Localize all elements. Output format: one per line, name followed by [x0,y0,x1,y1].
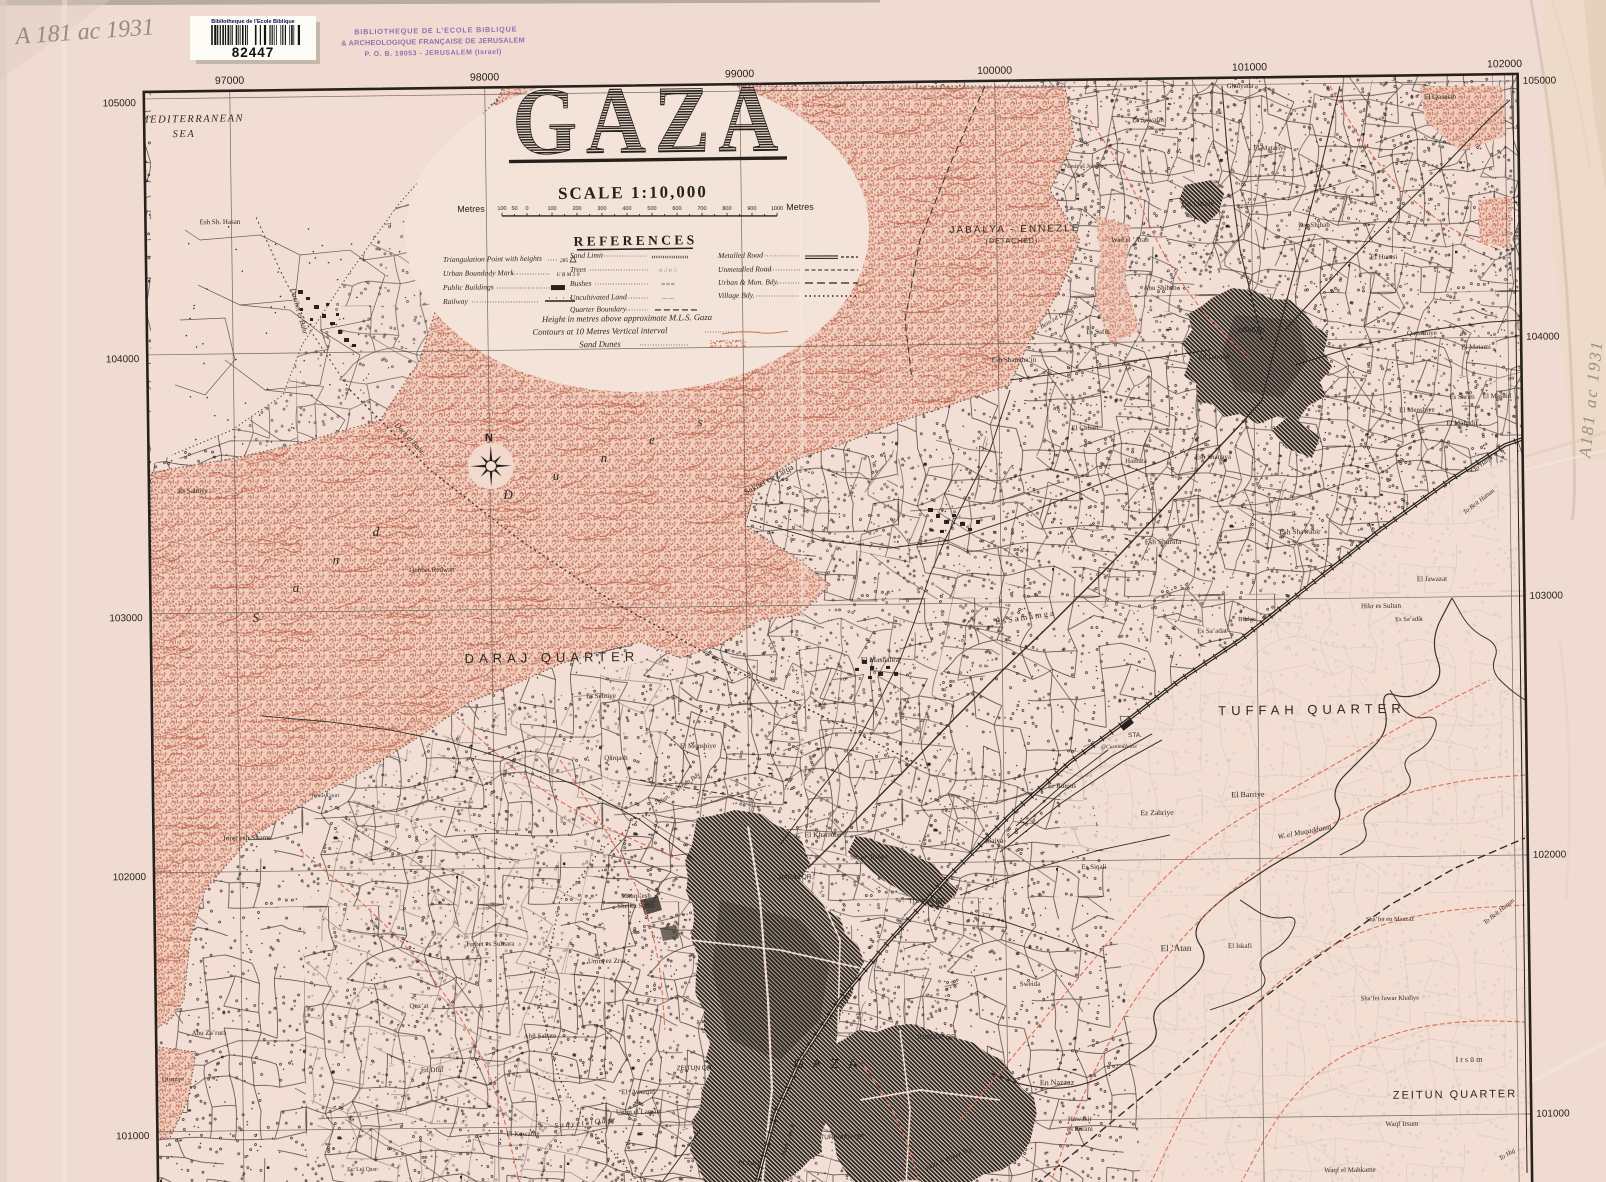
svg-text:Metres: Metres [786,202,814,212]
svg-text:A: A [813,1056,824,1071]
svg-text:Urban Boundady Mark: Urban Boundady Mark [443,268,515,278]
svg-text:El ’Atan: El ’Atan [1161,943,1192,953]
svg-text:Public Buildings: Public Buildings [442,282,494,292]
svg-text:@CustomHouse: @CustomHouse [1101,744,1138,750]
svg-text:Umm el Laman: Umm el Laman [616,1108,661,1117]
svg-text:Quz’at: Quz’at [409,1002,428,1010]
svg-text:Esh Shurafa: Esh Shurafa [1145,537,1182,546]
svg-text:Sha’fet Juwar Khafiye: Sha’fet Juwar Khafiye [1361,995,1420,1003]
svg-text:Bushes: Bushes [570,279,592,288]
svg-text:El Jawli: El Jawli [739,1159,762,1167]
svg-text:200: 200 [572,206,581,212]
svg-text:800: 800 [722,206,731,212]
svg-text:Urban & Mun. Bdy.: Urban & Mun. Bdy. [718,277,779,287]
svg-text:Unmetalled Road: Unmetalled Road [718,264,772,274]
svg-text:En Nazzaz: En Nazzaz [1040,1078,1075,1087]
svg-text:Triangulation Point with heigh: Triangulation Point with heights [443,254,542,264]
svg-text:A: A [849,1056,860,1071]
svg-text:Bibliotheque de l'Ecole Bibliq: Bibliotheque de l'Ecole Biblique [211,19,295,25]
svg-text:Ez Zahriye: Ez Zahriye [1140,808,1174,817]
svg-text:Wad el ’Arab: Wad el ’Arab [1111,236,1149,244]
svg-text:101000: 101000 [1232,61,1267,73]
svg-text:Waqf el Mahkame: Waqf el Mahkame [1324,1166,1376,1175]
svg-text:Dar Shihab: Dar Shihab [1298,221,1330,229]
svg-text:Es Sarim: Es Sarim [1449,393,1475,401]
svg-text:El Mashahra: El Mashahra [861,655,900,665]
svg-text:es Surani: es Surani [1067,1125,1093,1133]
svg-text:ZEITUN QUARTER: ZEITUN QUARTER [1393,1088,1518,1102]
svg-text:1000: 1000 [771,206,783,212]
svg-text:Sha’fet en Mazzaz: Sha’fet en Mazzaz [1366,916,1415,924]
svg-text:Nasir el Jeish: Nasir el Jeish [1064,163,1100,170]
svg-text:Sheikh Salim: Sheikh Salim [617,902,655,910]
svg-text:SEA: SEA [173,129,196,140]
svg-text:Ed Dful: Ed Dful [421,1066,444,1074]
svg-text:Turbet es Sumara: Turbet es Sumara [465,940,515,949]
svg-text:102000: 102000 [1533,849,1567,860]
svg-text:El Chbari: El Chbari [1071,424,1098,432]
svg-text:Trees: Trees [570,265,586,274]
svg-text:Abu Sabate: Abu Sabate [524,1032,557,1040]
svg-text:Qarqash: Qarqash [604,754,628,762]
svg-text:El Monshiye: El Monshiye [680,742,716,750]
svg-text:JUDEIDE QR.: JUDEIDE QR. [916,1034,957,1042]
svg-text:Umm ez Zrur: Umm ez Zrur [588,957,627,966]
svg-text:Sand Limit: Sand Limit [570,251,604,260]
svg-text:≈ ≈ ≈: ≈ ≈ ≈ [661,282,675,288]
svg-text:Bridge: Bridge [1238,616,1256,623]
svg-text:&: & [635,1098,641,1106]
svg-text:Hikr es Sultan: Hikr es Sultan [1361,602,1402,611]
svg-text:TURKMAN QR.: TURKMAN QR. [820,1134,866,1142]
svg-text:50: 50 [511,206,517,212]
svg-text:Es Safih: Es Safih [1086,328,1110,336]
svg-text:Qubbet Redwan: Qubbet Redwan [409,566,455,575]
svg-text:S: S [253,610,260,625]
svg-text:’Ibaiya: ’Ibaiya [982,836,1004,845]
svg-text:u: u [553,468,560,483]
svg-text:Qismiye: Qismiye [162,1076,184,1083]
svg-text:99000: 99000 [725,68,755,80]
svg-text:Mauqi’esh: Mauqi’esh [621,892,652,900]
svg-text:Village Bdy.: Village Bdy. [718,291,755,300]
svg-text:500: 500 [647,206,656,212]
svg-text:Es Sa’adat: Es Sa’adat [1197,627,1227,635]
svg-text:El Matariye: El Matariye [1253,144,1286,152]
svg-text:I r s ū m: I r s ū m [1456,1055,1484,1064]
svg-text:El Barriye: El Barriye [1231,790,1265,799]
svg-text:En Nezle: En Nezle [1181,198,1214,208]
svg-text:Waqf Irsum: Waqf Irsum [1385,1120,1419,1128]
svg-text:101000: 101000 [116,1131,150,1142]
svg-text:101000: 101000 [1536,1108,1570,1119]
svg-text:Abu Shihab: Abu Shihab [1143,284,1177,292]
svg-text:El Humsi: El Humsi [1371,253,1398,261]
svg-text:82447: 82447 [232,45,275,60]
svg-text:El ’Awamid: El ’Awamid [621,1088,655,1096]
svg-text:Contours at 10 Metres Vertical: Contours at 10 Metres Vertical interval [532,325,668,337]
svg-text:100: 100 [547,206,556,212]
svg-text:Tennis Court: Tennis Court [311,793,340,799]
svg-text:103000: 103000 [1529,590,1563,601]
svg-text:103000: 103000 [109,613,143,624]
svg-text:Esh Shamma’in: Esh Shamma’in [992,356,1037,365]
svg-text:n: n [601,450,608,465]
svg-text:Es Sa’adât: Es Sa’adât [1395,616,1423,623]
svg-text:El Qasasib: El Qasasib [1424,92,1457,101]
svg-text:El Kawafne: El Kawafne [506,1130,539,1138]
svg-text:N: N [485,432,493,444]
svg-text:R E F E R E N C E S: R E F E R E N C E S [574,232,695,249]
svg-text:Sweida: Sweida [1020,980,1042,988]
svg-text:Esh Sh. Hasan: Esh Sh. Hasan [200,218,241,227]
svg-text:100: 100 [497,206,506,212]
svg-text:Es. Lel Qasr: Es. Lel Qasr [347,1167,377,1173]
svg-text:Qattashiye: Qattashiye [1407,329,1437,337]
svg-text:TUFFAH QUARTER: TUFFAH QUARTER [1218,701,1406,718]
svg-text:ZEITUN QR.: ZEITUN QR. [677,1065,714,1072]
svg-text:Es Sabtiye: Es Sabtiye [178,487,208,495]
svg-text:El Matami: El Matami [1461,343,1491,351]
svg-text:700: 700 [697,206,706,212]
svg-text:105000: 105000 [102,98,136,109]
svg-text:Abu Za’rura: Abu Za’rura [192,1029,228,1037]
svg-text:Ed Dardon: Ed Dardon [1199,353,1230,361]
svg-text:Esh Shawabir: Esh Shawabir [1279,527,1321,537]
svg-text:n: n [333,552,340,567]
svg-text:0: 0 [525,206,528,212]
svg-text:(DETACHED): (DETACHED) [986,238,1039,246]
svg-text:97000: 97000 [215,75,245,87]
svg-text:102000: 102000 [113,872,147,883]
svg-text:El Kharrube: El Kharrube [804,830,842,839]
svg-text:○ ∴ ○ ∴: ○ ∴ ○ ∴ [659,268,677,274]
svg-text:98000: 98000 [470,71,500,83]
svg-text:a: a [293,580,300,595]
svg-text:Ghaiyada: Ghaiyada [1227,82,1255,90]
svg-text:Jabalye: Jabalye [1237,324,1264,334]
svg-text:Hawakir: Hawakir [1068,1115,1093,1123]
svg-text:El Menshiye: El Menshiye [1399,406,1435,414]
svg-text:Es Sebtiye: Es Sebtiye [586,692,616,700]
svg-text:SCALE 1:10,000: SCALE 1:10,000 [558,182,708,203]
svg-text:100000: 100000 [977,65,1012,77]
svg-text:400: 400 [622,206,631,212]
svg-text:MEDITERRANEAN: MEDITERRANEAN [139,113,244,125]
svg-text:TUFFAH QR.: TUFFAH QR. [909,898,948,906]
svg-text:285: 285 [560,258,569,264]
svg-text:Es Sawafih: Es Sawafih [1132,116,1164,124]
svg-text:105000: 105000 [1523,75,1557,86]
svg-text:Uncultivated Land: Uncultivated Land [570,292,627,302]
svg-text:Es Siqali: Es Siqali [1081,863,1106,871]
svg-text:El Jawazat: El Jawazat [1417,575,1447,583]
svg-text:Metres: Metres [457,204,485,214]
svg-text:DARAJ QUARTER: DARAJ QUARTER [465,649,640,666]
svg-text:Esh Shanaya: Esh Shanaya [1195,453,1232,461]
svg-text:s: s [697,414,702,429]
svg-text:Er Runjus: Er Runjus [1048,782,1077,790]
svg-text:D: D [502,487,513,502]
svg-text:Sh. el ’Ibaiya: Sh. el ’Ibaiya [850,853,889,862]
svg-text:El Masaid: El Masaid [1483,392,1512,400]
svg-text:Joret esh Shams: Joret esh Shams [223,833,272,843]
svg-text:Z: Z [831,1056,841,1071]
svg-text:300: 300 [597,206,606,212]
svg-text:d: d [373,524,380,539]
svg-text:900: 900 [747,206,756,212]
svg-text:G: G [794,1056,806,1071]
svg-text:STA.: STA. [1128,732,1142,739]
svg-text:El Iskafi: El Iskafi [1228,942,1252,950]
svg-text:104000: 104000 [1526,331,1560,342]
svg-text:Hamata: Hamata [1125,457,1148,465]
svg-text:JABALYA - ENNEZLE: JABALYA - ENNEZLE [949,223,1080,236]
svg-text:— —: — — [661,296,675,302]
svg-text:El Mahadir: El Mahadir [1446,419,1478,427]
svg-text:DARAJ QR.: DARAJ QR. [779,874,814,881]
svg-text:102000: 102000 [1487,58,1522,70]
svg-text:Metalled Road: Metalled Road [717,250,763,260]
svg-text:Railway: Railway [442,297,469,306]
svg-text:600: 600 [672,206,681,212]
svg-text:104000: 104000 [106,354,140,365]
svg-text:Sand Dunes: Sand Dunes [579,339,621,350]
svg-text:e: e [649,432,655,447]
